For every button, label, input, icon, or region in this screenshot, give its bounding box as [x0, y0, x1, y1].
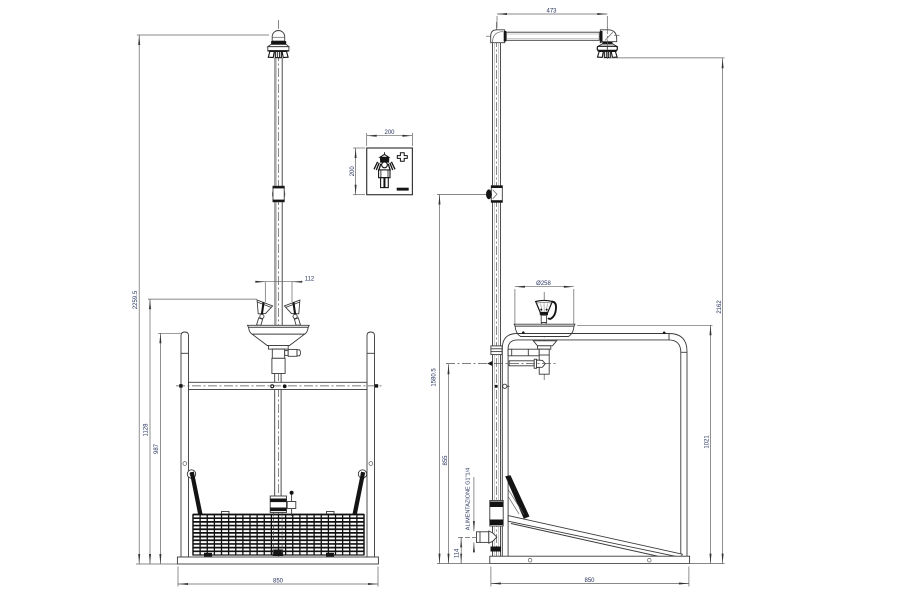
svg-text:987: 987 — [154, 443, 160, 454]
svg-text:855: 855 — [443, 455, 449, 466]
svg-text:112: 112 — [305, 277, 315, 283]
svg-text:2259.5: 2259.5 — [133, 290, 139, 309]
svg-text:114: 114 — [455, 548, 461, 558]
svg-text:850: 850 — [273, 579, 284, 585]
svg-text:200: 200 — [350, 166, 356, 177]
svg-text:200: 200 — [384, 130, 395, 136]
svg-text:1580.5: 1580.5 — [432, 368, 438, 387]
svg-text:1021: 1021 — [705, 435, 711, 449]
svg-text:473: 473 — [546, 8, 557, 14]
svg-text:Ø258: Ø258 — [536, 281, 551, 287]
svg-text:ALIMENTAZIONE G1"1/4: ALIMENTAZIONE G1"1/4 — [466, 468, 472, 530]
svg-text:850: 850 — [584, 578, 595, 584]
svg-text:2162: 2162 — [717, 300, 723, 314]
svg-text:1128: 1128 — [144, 423, 150, 437]
